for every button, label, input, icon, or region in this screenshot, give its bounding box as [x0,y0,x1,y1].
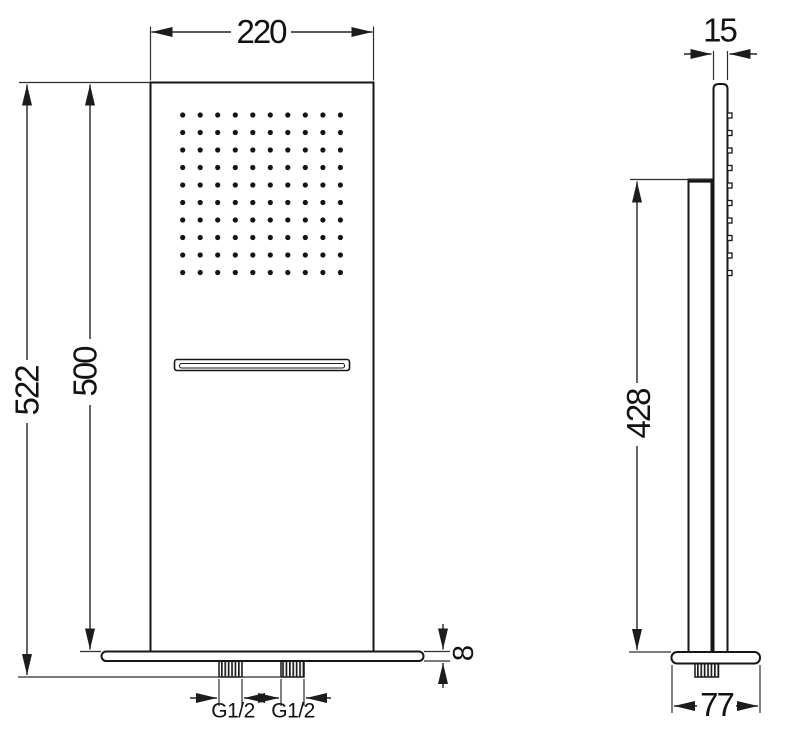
spray-nozzle-dot [338,130,343,135]
technical-drawing-canvas: 220 522 500 8 G1/2 G1/2 15 428 77 [0,0,800,730]
spray-nozzle-dot [180,200,185,205]
label-height-500: 500 [67,346,104,397]
spray-nozzle-dot [180,217,185,222]
spray-nozzle-dot [198,165,203,170]
spray-nozzle-dot [285,270,290,275]
spray-nozzle-dot [250,217,255,222]
waterfall-slot-inner [180,364,345,369]
thread-connector-right [281,661,304,677]
label-base-77: 77 [700,686,733,723]
spray-nozzle-dot [268,235,273,240]
spray-nozzle-dot [268,147,273,152]
wall-bracket [689,180,712,653]
spray-nozzle-dot [233,112,238,117]
side-nozzle-bump [728,166,733,171]
spray-nozzle-dot [268,130,273,135]
thread-connector-left [219,661,242,677]
spray-nozzle-dot [215,165,220,170]
spray-nozzle-dot [180,270,185,275]
spray-nozzle-dot [320,182,325,187]
side-nozzle-bump [728,253,733,258]
spray-nozzle-dot [303,217,308,222]
spray-nozzle-dot [285,217,290,222]
spray-nozzle-dot [338,147,343,152]
spray-nozzle-dot [320,200,325,205]
spray-nozzle-dot [215,252,220,257]
spray-nozzle-dot [338,165,343,170]
shower-panel-dimension-drawing: 220 522 500 8 G1/2 G1/2 15 428 77 [0,0,800,730]
spray-nozzle-dot [180,235,185,240]
spray-nozzle-dot [338,252,343,257]
spray-nozzle-dot [320,147,325,152]
side-nozzle-bump [728,201,733,206]
spray-nozzle-dot [233,235,238,240]
spray-nozzle-dot [303,130,308,135]
label-thread-left: G1/2 [211,700,255,723]
spray-nozzle-dot [180,165,185,170]
spray-nozzle-dot [268,112,273,117]
side-nozzle-bump [728,131,733,136]
label-thread-right: G1/2 [271,700,315,723]
side-view [672,84,761,677]
spray-nozzle-dot [233,270,238,275]
spray-nozzle-dot [338,182,343,187]
spray-nozzle-dot [180,147,185,152]
base-plate-front [102,652,424,662]
spray-nozzle-dot [233,130,238,135]
spray-nozzle-dot [338,200,343,205]
spray-nozzle-dot [233,182,238,187]
spray-nozzle-dot [285,112,290,117]
side-nozzle-bump [728,271,733,276]
spray-nozzle-dot [250,182,255,187]
spray-nozzle-dot [320,165,325,170]
spray-nozzle-dot [303,112,308,117]
spray-nozzle-dot [215,270,220,275]
spray-nozzle-dot [320,112,325,117]
label-thickness-8: 8 [448,646,480,661]
spray-nozzle-dot [338,270,343,275]
spray-nozzle-dot [303,270,308,275]
label-width-220: 220 [236,13,287,50]
spray-nozzle-dot [303,182,308,187]
spray-nozzle-dot [250,270,255,275]
base-plate-side [672,652,761,664]
spray-nozzle-dot [215,200,220,205]
spray-nozzle-dot [285,147,290,152]
thread-connector-side [695,664,719,678]
panel-side-body [714,84,728,652]
spray-nozzle-dot [233,147,238,152]
spray-nozzle-dot [303,147,308,152]
side-nozzle-bump [728,183,733,188]
spray-nozzle-dot [320,270,325,275]
spray-nozzle-dot [215,235,220,240]
spray-nozzle-dot [338,217,343,222]
spray-nozzle-dot [320,217,325,222]
spray-nozzle-dot [320,252,325,257]
spray-nozzle-dot [233,165,238,170]
spray-nozzle-dot [268,270,273,275]
spray-nozzle-dot [198,112,203,117]
spray-nozzle-dot [215,217,220,222]
spray-nozzle-dot [338,112,343,117]
spray-nozzle-dot [285,165,290,170]
spray-nozzle-dot [198,200,203,205]
spray-nozzle-dot [268,252,273,257]
label-depth-15: 15 [703,12,736,49]
spray-nozzle-dot [285,252,290,257]
spray-nozzle-dot [320,130,325,135]
spray-nozzle-dot [198,270,203,275]
side-nozzle-bump [728,148,733,153]
spray-nozzle-dot [233,217,238,222]
label-height-522: 522 [9,366,46,416]
spray-nozzle-dot [215,112,220,117]
spray-nozzle-dot [250,200,255,205]
spray-nozzle-dot [285,200,290,205]
spray-nozzle-dot [303,252,308,257]
spray-nozzle-dot [233,252,238,257]
spray-nozzle-dot [215,130,220,135]
spray-nozzle-dot [285,182,290,187]
spray-nozzle-dot [285,235,290,240]
spray-nozzle-dot [198,130,203,135]
spray-nozzle-dot [198,182,203,187]
spray-nozzle-dot [250,147,255,152]
dimension-lines [27,32,758,706]
spray-nozzle-dot [215,182,220,187]
side-nozzle-bump [728,236,733,241]
spray-nozzle-dot [180,130,185,135]
spray-nozzle-dot [250,112,255,117]
spray-nozzle-dot [250,130,255,135]
spray-nozzle-dot [215,147,220,152]
spray-nozzle-dot [250,252,255,257]
spray-nozzle-dot [180,112,185,117]
spray-nozzle-dot [180,182,185,187]
spray-nozzle-dot [320,235,325,240]
spray-nozzle-dot [338,235,343,240]
spray-nozzle-dot [180,252,185,257]
spray-nozzle-dot [303,200,308,205]
spray-nozzle-dot [233,200,238,205]
spray-nozzle-dot [268,182,273,187]
spray-nozzle-dot [198,217,203,222]
spray-nozzle-dot [303,165,308,170]
spray-nozzle-dot [268,217,273,222]
spray-nozzle-dot [198,235,203,240]
spray-nozzle-dot [303,235,308,240]
side-nozzle-bump [728,218,733,223]
spray-nozzle-dot [250,235,255,240]
front-view [102,83,424,678]
label-height-428: 428 [620,389,657,439]
spray-nozzle-dot [268,165,273,170]
spray-nozzle-dot [268,200,273,205]
spray-nozzle-dot [250,165,255,170]
side-nozzle-bump [728,113,733,118]
spray-nozzle-dot [198,147,203,152]
spray-nozzle-dot [198,252,203,257]
spray-nozzle-dot [285,130,290,135]
